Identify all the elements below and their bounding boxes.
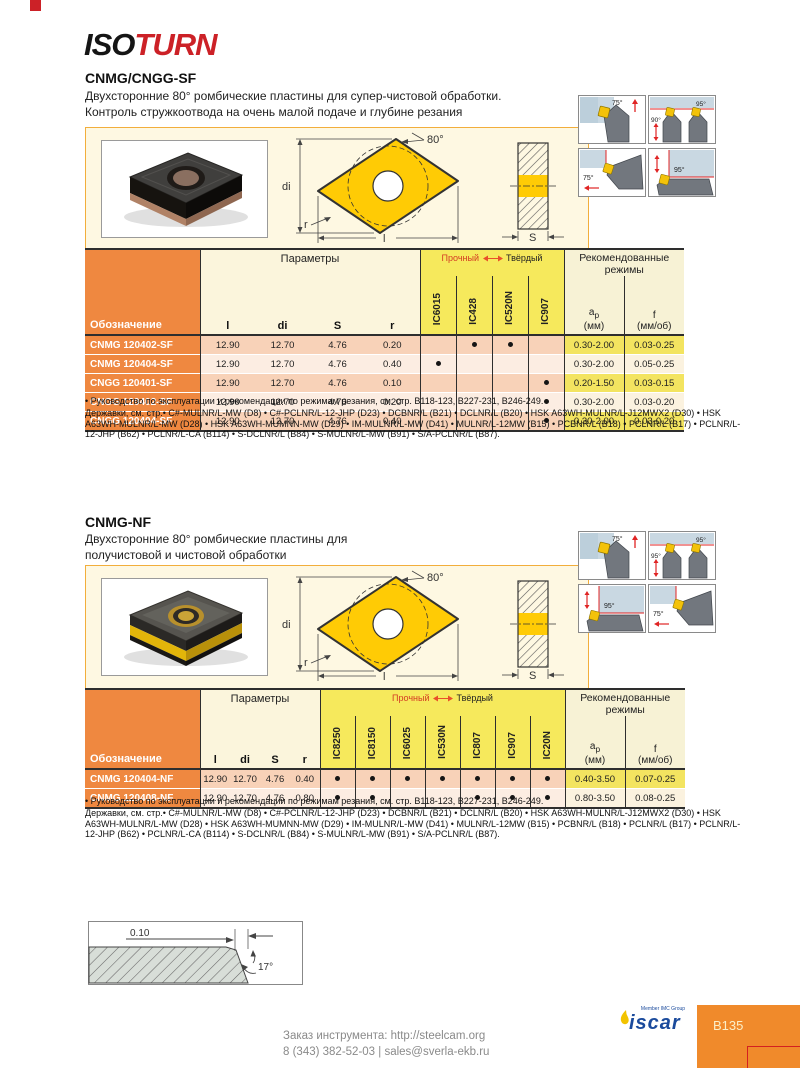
recommended-modes-header: Рекомендованные режимы [564, 249, 684, 276]
parameters-group-header: Параметры [200, 249, 420, 276]
svg-text:S: S [529, 232, 536, 244]
svg-text:l: l [383, 671, 385, 683]
param-column-header: S [260, 716, 290, 769]
insert-photo-image [102, 141, 265, 235]
svg-text:75°: 75° [653, 610, 664, 618]
param-value-cell: 12.70 [230, 769, 260, 789]
designation-cell: CNMG 120404-SF [85, 355, 200, 374]
svg-text:95°: 95° [651, 552, 661, 560]
designation-header: Обозначение [85, 249, 200, 335]
grade-availability-cell [355, 769, 390, 789]
designation-cell: CNMG 120402-SF [85, 335, 200, 355]
grade-column-header: IC8150 [355, 716, 390, 769]
param-column-header: l [200, 276, 255, 335]
svg-text:90°: 90° [651, 116, 661, 124]
availability-dot [436, 361, 441, 366]
catalog-page: ISOTURN CNMG/CNGG-SF Двухсторонние 80° р… [0, 0, 800, 1068]
print-registration-mark [30, 0, 41, 11]
parameters-group-header: Параметры [200, 689, 320, 716]
usage-note-nf: • Руководство по эксплуатации и рекоменд… [85, 796, 745, 807]
grade-column-header: IC20N [530, 716, 565, 769]
designation-cell: CNMG 120404-NF [85, 769, 200, 789]
toolholder-angle-icons-nf: 75° 95° 95° 95° 75° [578, 531, 714, 633]
param-value-cell: 0.20 [365, 335, 420, 355]
logo-iso-text: ISO [84, 27, 134, 62]
insert-photo-nf [101, 578, 268, 676]
availability-dot [335, 776, 340, 781]
grade-availability-cell [420, 355, 456, 374]
section-sf-description: Двухсторонние 80° ромбические пластины д… [85, 88, 501, 120]
table-row: CNMG 120404-NF12.9012.704.760.400.40-3.5… [85, 769, 685, 789]
param-column-header: l [200, 716, 230, 769]
section-sf-desc-line2: Контроль стружкоотвода на очень малой по… [85, 104, 501, 120]
param-value-cell: 0.40 [290, 769, 320, 789]
grade-availability-cell [460, 769, 495, 789]
availability-dot [472, 342, 477, 347]
rec-column-header: ap(мм) [565, 716, 625, 769]
grades-group-header: Прочный Твёрдый [320, 689, 565, 716]
svg-text:l: l [383, 233, 385, 245]
grade-column-header: IC6015 [420, 276, 456, 335]
param-column-header: r [290, 716, 320, 769]
svg-text:0.10: 0.10 [130, 928, 150, 939]
grade-availability-cell [456, 355, 492, 374]
grade-availability-cell [528, 355, 564, 374]
svg-text:r: r [304, 657, 308, 669]
table-row: CNGG 120401-SF12.9012.704.760.100.20-1.5… [85, 374, 684, 393]
param-value-cell: 0.40 [365, 355, 420, 374]
param-value-cell: 12.90 [200, 355, 255, 374]
insert-panel-sf: di l 80° r S [85, 127, 589, 250]
rec-column-header: f(мм/об) [624, 276, 684, 335]
toolholder-icon: 95° [648, 148, 716, 197]
param-column-header: S [310, 276, 365, 335]
svg-text:r: r [304, 219, 308, 231]
svg-text:75°: 75° [612, 535, 623, 543]
svg-text:95°: 95° [696, 100, 706, 108]
param-value-cell: 12.70 [255, 335, 310, 355]
edge-profile-drawing: 0.10 17° [88, 921, 303, 985]
toolholder-icon: 75° [648, 584, 716, 633]
section-nf-description: Двухсторонние 80° ромбические пластины д… [85, 531, 347, 563]
grades-group-header: Прочный Твёрдый [420, 249, 564, 276]
param-column-header: di [255, 276, 310, 335]
usage-note-sf: • Руководство по эксплуатации и рекоменд… [85, 396, 745, 407]
grade-availability-cell [420, 335, 456, 355]
table-row: CNMG 120404-SF12.9012.704.760.400.30-2.0… [85, 355, 684, 374]
toolholder-angle-icons-sf: 75° 95° 90° 75° 95° [578, 95, 714, 197]
rec-value-cell: 0.03-0.25 [624, 335, 684, 355]
page-number: B135 [697, 1005, 800, 1033]
toolholder-icon: 75° [578, 95, 646, 144]
grade-column-header: IC8250 [320, 716, 355, 769]
grade-column-header: IC428 [456, 276, 492, 335]
svg-text:17°: 17° [258, 962, 273, 973]
insert-data-table: ОбозначениеПараметрыПрочный ТвёрдыйРеком… [85, 688, 685, 809]
toolholder-icon: 95° [578, 584, 646, 633]
svg-text:95°: 95° [604, 602, 615, 610]
grade-availability-cell [456, 374, 492, 393]
insert-table-nf: ОбозначениеПараметрыПрочный ТвёрдыйРеком… [85, 688, 685, 809]
availability-dot [544, 380, 549, 385]
availability-dot [405, 776, 410, 781]
rec-value-cell: 0.20-1.50 [564, 374, 624, 393]
insert-panel-nf: di l 80° r S [85, 565, 589, 689]
param-value-cell: 12.90 [200, 335, 255, 355]
param-value-cell: 12.90 [200, 374, 255, 393]
order-url: Заказ инструмента: http://steelcam.org [283, 1028, 489, 1044]
rec-value-cell: 0.40-3.50 [565, 769, 625, 789]
svg-text:95°: 95° [696, 536, 706, 544]
param-value-cell: 12.90 [200, 769, 230, 789]
logo-turn-text: TURN [134, 27, 216, 62]
param-value-cell: 12.70 [255, 355, 310, 374]
rec-value-cell: 0.05-0.25 [624, 355, 684, 374]
insert-photo-sf [101, 140, 268, 238]
rec-value-cell: 0.07-0.25 [625, 769, 685, 789]
param-value-cell: 4.76 [310, 374, 365, 393]
rec-value-cell: 0.03-0.15 [624, 374, 684, 393]
param-column-header: r [365, 276, 420, 335]
recommended-modes-header: Рекомендованные режимы [565, 689, 685, 716]
order-contact-info: Заказ инструмента: http://steelcam.org 8… [283, 1028, 489, 1060]
rec-column-header: f(мм/об) [625, 716, 685, 769]
grade-availability-cell [492, 335, 528, 355]
svg-text:75°: 75° [583, 174, 594, 182]
grade-column-header: IC6025 [390, 716, 425, 769]
svg-text:95°: 95° [674, 166, 685, 174]
grade-availability-cell [528, 374, 564, 393]
grade-availability-cell [495, 769, 530, 789]
availability-dot [508, 342, 513, 347]
grade-column-header: IC530N [425, 716, 460, 769]
svg-text:80°: 80° [427, 572, 444, 584]
grade-column-header: IC520N [492, 276, 528, 335]
svg-text:S: S [529, 670, 536, 682]
svg-text:di: di [282, 619, 291, 631]
grade-availability-cell [492, 374, 528, 393]
table-row: CNMG 120402-SF12.9012.704.760.200.30-2.0… [85, 335, 684, 355]
iscar-logo: Member IMC Group iscar [617, 1006, 695, 1046]
order-phone-email: 8 (343) 382-52-03 | sales@sverla-ekb.ru [283, 1044, 489, 1060]
grade-availability-cell [492, 355, 528, 374]
svg-text:di: di [282, 181, 291, 193]
grade-availability-cell [456, 335, 492, 355]
grade-availability-cell [528, 335, 564, 355]
designation-header: Обозначение [85, 689, 200, 769]
param-value-cell: 12.70 [255, 374, 310, 393]
availability-dot [370, 776, 375, 781]
availability-dot [545, 776, 550, 781]
section-sf-title: CNMG/CNGG-SF [85, 70, 196, 86]
grade-availability-cell [530, 769, 565, 789]
iscar-flame-icon [619, 1010, 630, 1026]
section-nf-desc-line1: Двухсторонние 80° ромбические пластины д… [85, 531, 347, 547]
grade-column-header: IC907 [528, 276, 564, 335]
grade-availability-cell [390, 769, 425, 789]
section-sf-desc-line1: Двухсторонние 80° ромбические пластины д… [85, 88, 501, 104]
grade-availability-cell [425, 769, 460, 789]
param-value-cell: 0.10 [365, 374, 420, 393]
insert-dimension-drawing-nf: di l 80° r S [278, 569, 578, 684]
param-value-cell: 4.76 [310, 355, 365, 374]
section-nf-title: CNMG-NF [85, 514, 151, 530]
page-number-badge: B135 [697, 1005, 800, 1068]
param-value-cell: 4.76 [310, 335, 365, 355]
insert-dimension-drawing-sf: di l 80° r S [278, 131, 578, 246]
rec-value-cell: 0.30-2.00 [564, 335, 624, 355]
insert-photo-image [102, 579, 265, 673]
rec-column-header: ap(мм) [564, 276, 624, 335]
grade-availability-cell [320, 769, 355, 789]
grade-column-header: IC907 [495, 716, 530, 769]
holders-note-nf: Державки, см. стр.• C#-MULNR/L-MW (D8) •… [85, 808, 745, 840]
isoturn-logo: ISOTURN [84, 28, 217, 62]
holders-note-sf: Державки, см. стр.• C#-MULNR/L-MW (D8) •… [85, 408, 745, 440]
toolholder-icon: 75° [578, 148, 646, 197]
param-column-header: di [230, 716, 260, 769]
designation-cell: CNGG 120401-SF [85, 374, 200, 393]
svg-text:75°: 75° [612, 99, 623, 107]
grade-availability-cell [420, 374, 456, 393]
toolholder-icon: 95° 90° [648, 95, 716, 144]
availability-dot [440, 776, 445, 781]
toolholder-icon: 95° 95° [648, 531, 716, 580]
availability-dot [510, 776, 515, 781]
param-value-cell: 4.76 [260, 769, 290, 789]
badge-corner-lines [747, 1046, 800, 1068]
availability-dot [475, 776, 480, 781]
section-nf-desc-line2: получистовой и чистовой обработки [85, 547, 347, 563]
rec-value-cell: 0.30-2.00 [564, 355, 624, 374]
toolholder-icon: 75° [578, 531, 646, 580]
grade-column-header: IC807 [460, 716, 495, 769]
svg-text:80°: 80° [427, 134, 444, 146]
